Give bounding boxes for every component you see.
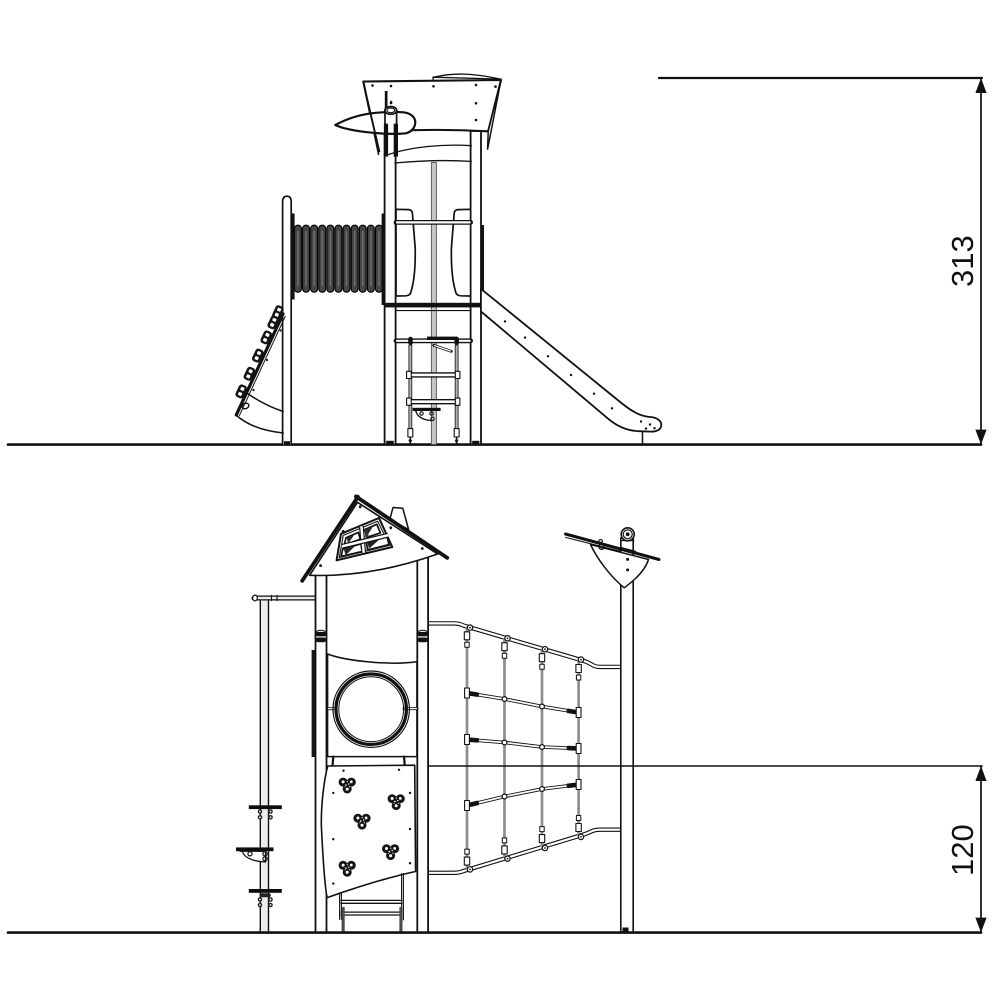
svg-text:120: 120: [945, 824, 980, 876]
svg-text:313: 313: [945, 235, 980, 287]
